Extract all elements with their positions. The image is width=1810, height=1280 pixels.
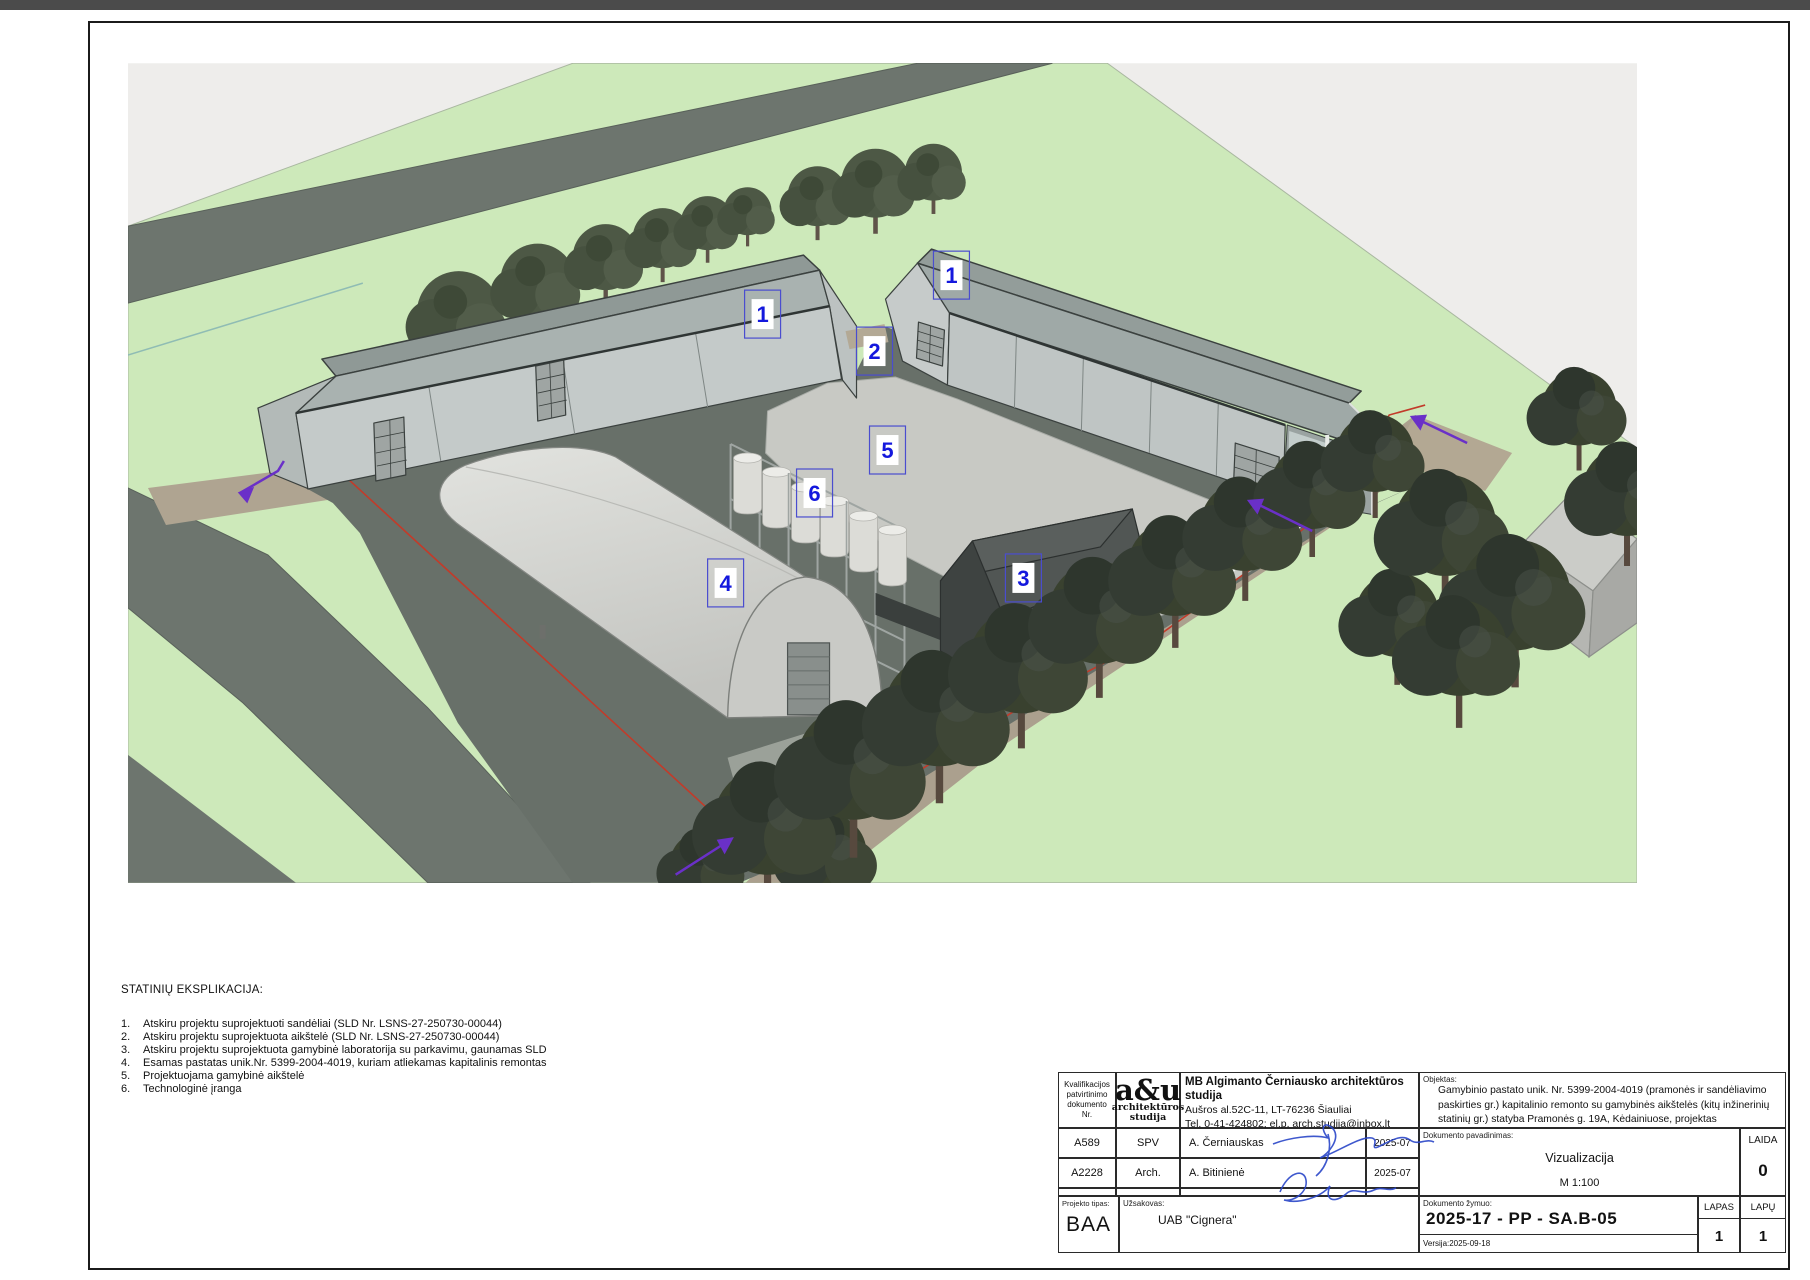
object-cell: Objektas: Gamybinio pastato unik. Nr. 53… (1419, 1072, 1786, 1128)
studio-logo: a&u architektūros studija (1116, 1072, 1180, 1128)
role: SPV (1116, 1128, 1180, 1158)
cert-number: A2228 (1058, 1158, 1116, 1188)
project-type-cell: Projekto tipas: BAA (1058, 1196, 1119, 1253)
site-visualization: 1 1 2 3 4 (128, 63, 1637, 883)
company-info: MB Algimanto Černiausko architektūros st… (1180, 1072, 1419, 1128)
svg-text:1: 1 (945, 263, 957, 288)
window-top-bar (0, 0, 1810, 10)
legend-item: 3.Atskiru projektu suprojektuota gamybin… (121, 1044, 681, 1057)
drawing-sheet: 1 1 2 3 4 (0, 0, 1810, 1280)
empty-cell (1116, 1188, 1180, 1196)
document-name-cell: Dokumento pavadinimas: Vizualizacija M 1… (1419, 1128, 1740, 1196)
sign-date: 2025-07 (1366, 1158, 1419, 1188)
legend-title: STATINIŲ EKSPLIKACIJA: (121, 984, 681, 996)
svg-text:3: 3 (1017, 566, 1029, 591)
signer-name: A. Bitinienė (1180, 1158, 1366, 1188)
signer-name: A. Černiauskas (1180, 1128, 1366, 1158)
lapas-cell: LAPAS 1 (1698, 1196, 1740, 1253)
qualification-header: Kvalifikacijos patvirtinimo dokumento Nr… (1058, 1072, 1116, 1128)
legend-item: 5.Projektuojama gamybinė aikštelė (121, 1070, 681, 1083)
document-code-cell: Dokumento žymuo: 2025-17 - PP - SA.B-05 … (1419, 1196, 1698, 1253)
role: Arch. (1116, 1158, 1180, 1188)
buildings-legend: STATINIŲ EKSPLIKACIJA: 1.Atskiru projekt… (121, 984, 681, 1095)
legend-item: 6.Technologinė įranga (121, 1083, 681, 1096)
empty-cell (1366, 1188, 1419, 1196)
svg-text:6: 6 (808, 481, 820, 506)
svg-text:4: 4 (719, 571, 732, 596)
sign-date: 2025-07 (1366, 1128, 1419, 1158)
legend-item: 4.Esamas pastatas unik.Nr. 5399-2004-401… (121, 1057, 681, 1070)
bollard (540, 625, 546, 639)
title-block: Kvalifikacijos patvirtinimo dokumento Nr… (1058, 1072, 1786, 1253)
legend-item: 2.Atskiru projektu suprojektuota aikštel… (121, 1031, 681, 1044)
version-text: Versija:2025-09-18 (1420, 1234, 1697, 1248)
legend-item: 1.Atskiru projektu suprojektuoti sandėli… (121, 1018, 681, 1031)
empty-cell (1180, 1188, 1366, 1196)
client-cell: Užsakovas: UAB "Cignera" (1119, 1196, 1419, 1253)
lapu-cell: LAPŲ 1 (1740, 1196, 1786, 1253)
cert-number: A589 (1058, 1128, 1116, 1158)
empty-cell (1058, 1188, 1116, 1196)
svg-text:2: 2 (868, 339, 880, 364)
svg-text:5: 5 (881, 438, 893, 463)
svg-text:1: 1 (756, 302, 768, 327)
laida-cell: LAIDA 0 (1740, 1128, 1786, 1196)
rollup-door (788, 643, 830, 715)
